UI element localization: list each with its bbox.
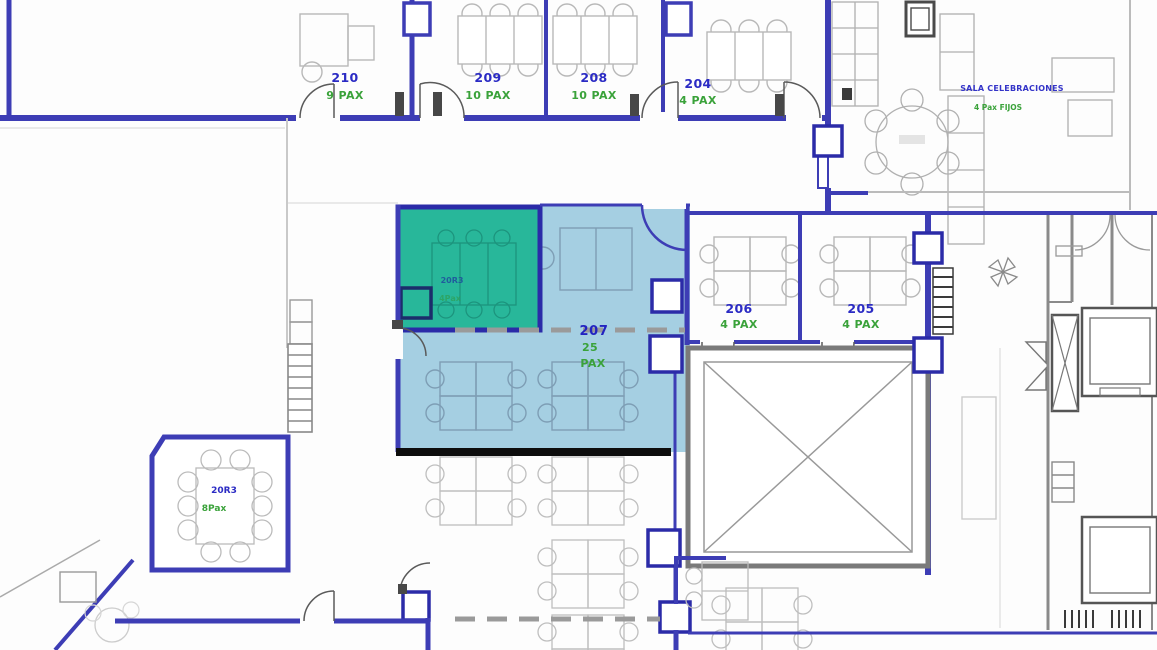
room-205-pax: 4 PAX bbox=[842, 318, 880, 331]
room-208-pax: 10 PAX bbox=[571, 89, 617, 102]
room-20r3: 20R3 8Pax bbox=[152, 437, 288, 570]
room-207-pax-unit: PAX bbox=[580, 357, 605, 370]
room-20r3-number: 20R3 bbox=[211, 486, 237, 496]
room-208-number: 208 bbox=[580, 70, 607, 85]
teal-room-pax: 4Pax bbox=[439, 294, 462, 303]
room-205-number: 205 bbox=[847, 301, 874, 316]
sala-label: SALA CELEBRACIONES bbox=[960, 84, 1064, 93]
room-209-pax: 10 PAX bbox=[465, 89, 511, 102]
stairs-hatch bbox=[288, 344, 312, 432]
room-210-number: 210 bbox=[331, 70, 358, 85]
elevator-2 bbox=[1082, 308, 1157, 396]
room-206-number: 206 bbox=[725, 301, 752, 316]
floor-plan-canvas: SALA CELEBRACIONES 4 Pax FIJOS bbox=[0, 0, 1157, 650]
teal-room-number: 20R3 bbox=[441, 276, 464, 285]
room-209-number: 209 bbox=[474, 70, 501, 85]
room-206-pax: 4 PAX bbox=[720, 318, 758, 331]
sala-fixture bbox=[842, 88, 852, 100]
room-207-number: 207 bbox=[580, 324, 609, 339]
sala-door-leaf bbox=[906, 2, 934, 36]
teal-room: 20R3 4Pax bbox=[398, 207, 540, 330]
room-20r3-pax: 8Pax bbox=[202, 504, 227, 514]
room-204-number: 204 bbox=[684, 76, 711, 91]
teal-room-highlight[interactable] bbox=[398, 207, 540, 330]
sala-pax-label: 4 Pax FIJOS bbox=[974, 103, 1022, 112]
room-210-pax: 9 PAX bbox=[326, 89, 364, 102]
patio-skylight bbox=[688, 348, 928, 566]
room-207-pax-count: 25 bbox=[582, 341, 598, 354]
elevator-1 bbox=[1052, 315, 1078, 411]
room-204-pax: 4 PAX bbox=[679, 94, 717, 107]
core-ladder-hatch bbox=[933, 268, 953, 334]
floor-plan-drawing: SALA CELEBRACIONES 4 Pax FIJOS bbox=[0, 0, 1157, 650]
elevator-3 bbox=[1082, 517, 1157, 603]
